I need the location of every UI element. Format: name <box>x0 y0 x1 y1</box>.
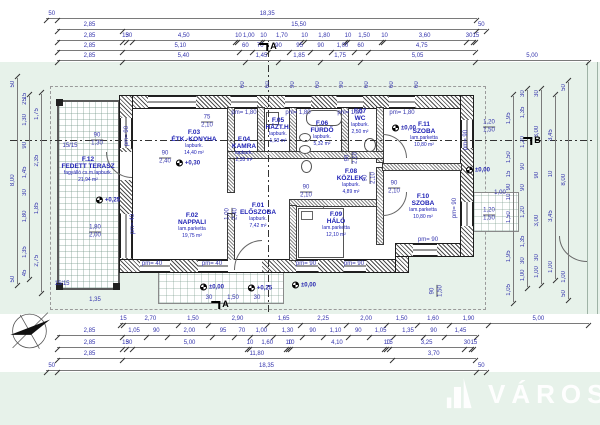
opening-size-label: 752,10 <box>201 115 213 130</box>
dim-column: 508,0050 <box>8 78 18 284</box>
section-bracket-icon <box>523 137 532 145</box>
opening-size-label: 902,10 <box>388 181 400 196</box>
parapet-label: pm= 90 <box>124 126 130 146</box>
parapet-label: 30 <box>254 295 261 301</box>
dim-column: 508,001,0050 <box>559 82 569 299</box>
section-bracket-icon <box>259 43 268 51</box>
room-label: F.10 SZOBA lam.parketta 10,80 m² <box>409 193 437 221</box>
dim-row: 2,8515304,50101,00101,70101,80101,50103,… <box>57 32 476 41</box>
level-symbol-icon <box>96 197 103 204</box>
plot-boundary-line <box>597 62 598 314</box>
dim-row: 5018,35 <box>46 10 477 19</box>
north-arrow-icon <box>8 308 54 354</box>
room-label: F.08 KÖZLEK. lapburk. 4,89 m² <box>337 168 366 196</box>
section-bracket-icon <box>211 301 220 309</box>
dim-row: 152,701,502,901,652,252,001,501,601,905,… <box>120 315 589 324</box>
level-symbol-icon <box>292 282 299 289</box>
dim-row: 5018,3550 <box>46 362 487 371</box>
level-marker: +0,25 <box>96 197 120 204</box>
level-marker: ±0,00 <box>292 282 316 289</box>
parapet-label: pm= 1,80 <box>389 110 414 116</box>
dim-column: 301,351,2090901,201,35301,00 <box>518 90 528 287</box>
window <box>148 96 196 108</box>
opening-size-label: 1,802,00 <box>89 225 101 240</box>
level-marker: ±0,00 <box>466 167 490 174</box>
parapet-label: pm= 90 <box>418 237 438 243</box>
level-symbol-icon <box>200 284 207 291</box>
dim-column: 1,752,351,852,75 <box>32 94 42 292</box>
window <box>389 96 415 108</box>
parapet-label: pm= 40 <box>142 261 162 267</box>
parapet-label: 1,35 <box>89 297 101 303</box>
plot-boundary-line <box>587 62 588 314</box>
parapet-label: pm= 1,80 <box>337 110 362 116</box>
dim-column: 15251,30901,45301,801,3545 <box>20 96 30 278</box>
dim-column: 303,00903,00301,00 <box>532 90 542 284</box>
dim-row: 2,851,05902,0095701,001,30901,10901,051,… <box>57 327 477 336</box>
parapet-label: pm= 40 <box>130 214 136 234</box>
parapet-label: 15/15 <box>62 143 77 149</box>
parapet-label: pm= 90 <box>463 130 469 150</box>
terrace-column <box>113 283 120 290</box>
company-logo: VÁROSI <box>446 374 600 414</box>
level-marker: +0,30 <box>176 160 200 167</box>
parapet-label: pm= 90 <box>452 198 458 218</box>
room-label: F.12 FEDETT TERASZ fagyálló cs.m.lapburk… <box>61 156 114 184</box>
dim-column: 3,45103,451,00 <box>546 96 556 279</box>
room-label: F.05 HÁZT.H. lapburk. 1,03 m² <box>266 117 291 145</box>
partition <box>383 164 461 170</box>
parapet-label: pm= 90 <box>296 261 316 267</box>
dim-row: 2,855,401,451,851,755,055,00 <box>57 52 589 61</box>
parapet-label: 15/15 <box>54 281 69 287</box>
window <box>231 96 257 108</box>
partition <box>228 214 234 260</box>
parapet-label: 1,00 <box>494 190 506 196</box>
parapet-label: pm= 1,80 <box>285 110 310 116</box>
dim-row: 2,8511,803,70 <box>57 350 476 359</box>
room-label: F.09 HÁLÓ lam.parketta 12,10 m² <box>322 211 350 239</box>
terrace-floor-grid <box>57 100 120 290</box>
logo-building-icon <box>446 374 476 414</box>
section-marker: A <box>211 299 229 309</box>
parapet-label: pm= 1,80 <box>231 110 256 116</box>
room-label: F.02 NAPPALI lam.parketta 19,75 m² <box>178 212 206 240</box>
dim-row: 2,8515305,00101,6010104,1010153,253015 <box>57 339 474 348</box>
room-label: F.06 FÜRDŐ lapburk. 5,32 m² <box>310 120 333 148</box>
opening-size-label: 1,201,50 <box>483 120 495 135</box>
level-symbol-icon <box>176 160 183 167</box>
section-marker: A <box>259 41 277 51</box>
parapet-label: pm= 90 <box>344 261 364 267</box>
partition <box>290 206 296 260</box>
opening-size-label: 901,30 <box>91 133 103 148</box>
dim-row: 2,8515,5050 <box>57 21 487 30</box>
bed-pillow <box>301 211 313 220</box>
opening-size-label: 902,40 <box>159 151 171 166</box>
window <box>461 202 473 226</box>
sink <box>299 145 311 154</box>
partition <box>258 108 264 156</box>
level-marker: ±0,00 <box>392 125 416 132</box>
level-symbol-icon <box>466 167 473 174</box>
section-marker: B <box>523 135 541 145</box>
opening-size-label: 901,50 <box>430 285 445 297</box>
toilet <box>301 160 312 173</box>
room-label: F.01 ELŐSZOBA lapburk. 7,42 m² <box>240 202 276 230</box>
dim-vertical-labels: 6060906090606060 <box>240 68 420 88</box>
opening-size-label: 1,002,40 <box>225 208 240 220</box>
opening-size-label: 1,201,50 <box>483 208 495 223</box>
dim-column: 1,951,501590101,501,951,05 <box>504 96 514 302</box>
floor-plan-drawing: 5018,35 2,8515,5050 2,8515304,50101,0010… <box>0 0 600 425</box>
level-symbol-icon <box>248 285 255 292</box>
opening-size-label: 902,10 <box>363 172 378 184</box>
room-label: F.03 ÉTK.-KONYHA lapburk. 14,40 m² <box>171 129 216 157</box>
parapet-label: pm= 40 <box>202 261 222 267</box>
opening-size-label: 902,10 <box>345 152 360 164</box>
window <box>413 244 437 256</box>
level-marker: +0,25 <box>248 285 272 292</box>
logo-text: VÁROSI <box>488 379 600 410</box>
level-symbol-icon <box>392 125 399 132</box>
window <box>337 96 363 108</box>
room-label: F.04 KAMRA lapburk. 2,35 m² <box>232 136 256 164</box>
window <box>285 96 311 108</box>
opening-size-label: 902,10 <box>300 185 312 200</box>
level-marker: ±0,00 <box>200 284 224 291</box>
terrace-column <box>56 99 63 106</box>
